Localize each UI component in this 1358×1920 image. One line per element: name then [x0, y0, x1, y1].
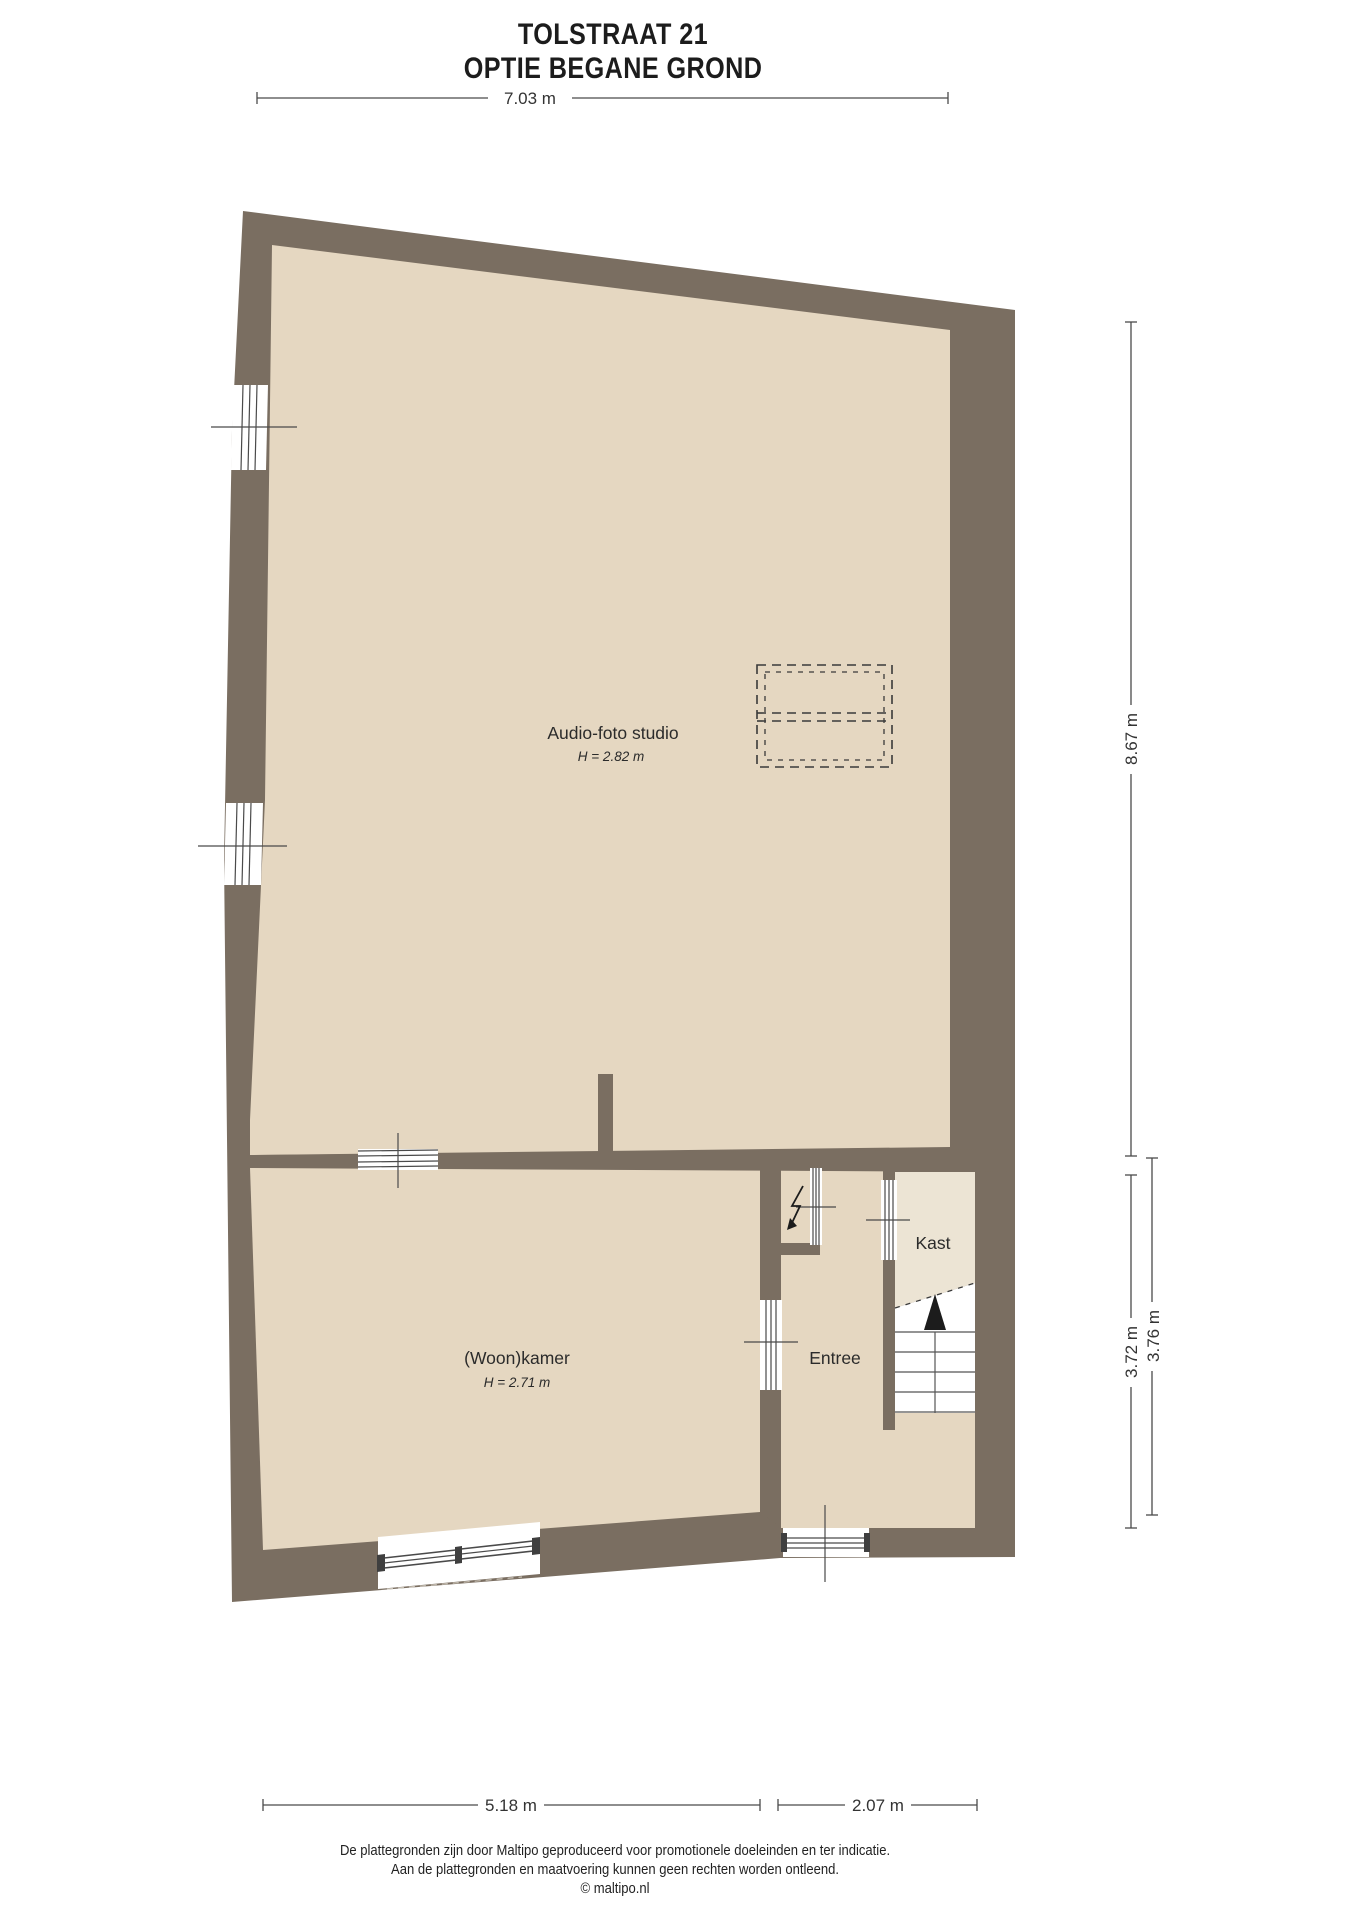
- dimension-value-right-lower-inner: 3.72 m: [1122, 1326, 1141, 1378]
- window-frame-cap: [455, 1546, 462, 1564]
- footer-copyright: © maltipo.nl: [580, 1880, 649, 1896]
- room-label-audio-foto-studio: Audio-foto studio: [547, 723, 678, 743]
- dimension-bottom-left: 5.18 m: [263, 1796, 760, 1815]
- footer-disclaimer-line1: De plattegronden zijn door Maltipo gepro…: [340, 1842, 890, 1858]
- dimension-value-bottom-right: 2.07 m: [852, 1796, 904, 1815]
- floorplan-canvas: TOLSTRAAT 21 OPTIE BEGANE GROND: [0, 0, 1358, 1920]
- page-subtitle: OPTIE BEGANE GROND: [464, 51, 763, 85]
- footer-disclaimer-line2: Aan de plattegronden en maatvoering kunn…: [391, 1861, 839, 1877]
- dimension-value-bottom-left: 5.18 m: [485, 1796, 537, 1815]
- floorplan-page: TOLSTRAAT 21 OPTIE BEGANE GROND: [0, 0, 1358, 1920]
- dimension-right-lower-inner: 3.72 m: [1122, 1175, 1141, 1528]
- dimension-top: 7.03 m: [257, 89, 948, 108]
- door-frame-cap: [781, 1533, 787, 1552]
- window-frame-cap: [532, 1537, 540, 1555]
- room-audio-foto-studio-floor: [250, 245, 950, 1155]
- page-title: TOLSTRAAT 21: [518, 17, 708, 51]
- room-label-kast: Kast: [915, 1233, 950, 1253]
- room-height-audio-foto-studio: H = 2.82 m: [578, 749, 644, 764]
- dimension-right-upper: 8.67 m: [1122, 322, 1141, 1156]
- dimension-right-lower-outer: 3.76 m: [1144, 1158, 1163, 1515]
- door-frame-cap: [864, 1533, 870, 1552]
- window-frame-cap: [377, 1554, 385, 1572]
- interior-wall-stub: [598, 1074, 613, 1162]
- dimension-bottom-right: 2.07 m: [778, 1796, 977, 1815]
- dimension-value-right-lower-outer: 3.76 m: [1144, 1310, 1163, 1362]
- dimension-value-top: 7.03 m: [504, 89, 556, 108]
- room-label-entree: Entree: [809, 1348, 861, 1368]
- room-label-woonkamer: (Woon)kamer: [464, 1348, 570, 1368]
- dimension-value-right-upper: 8.67 m: [1122, 713, 1141, 765]
- room-height-woonkamer: H = 2.71 m: [484, 1375, 550, 1390]
